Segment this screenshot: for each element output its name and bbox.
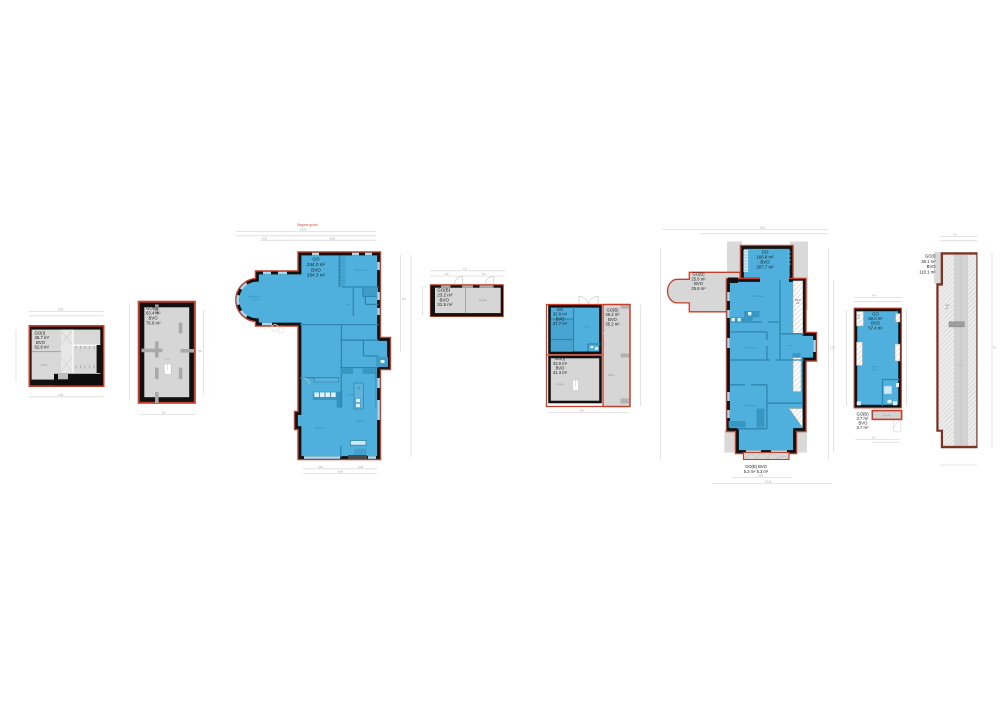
svg-text:6,50: 6,50 bbox=[330, 236, 336, 240]
svg-text:41.3 m²: 41.3 m² bbox=[553, 370, 568, 375]
svg-text:12,10: 12,10 bbox=[765, 480, 772, 484]
svg-text:4,1: 4,1 bbox=[872, 436, 876, 440]
svg-text:264.3 m²: 264.3 m² bbox=[307, 273, 326, 278]
svg-text:8,9: 8,9 bbox=[580, 409, 584, 413]
svg-text:m²: m² bbox=[946, 307, 949, 310]
svg-text:57.4 m²: 57.4 m² bbox=[868, 325, 883, 330]
svg-text:38.2 m²: 38.2 m² bbox=[871, 369, 879, 372]
svg-text:8,6: 8,6 bbox=[402, 297, 406, 301]
svg-text:Woonk.: Woonk. bbox=[871, 367, 879, 369]
svg-text:3,6: 3,6 bbox=[445, 272, 449, 276]
svg-text:3,4: 3,4 bbox=[953, 233, 957, 237]
svg-text:Keuken: Keuken bbox=[346, 395, 355, 397]
svg-text:62.6 m²: 62.6 m² bbox=[35, 345, 50, 350]
svg-text:14,00: 14,00 bbox=[300, 228, 307, 232]
svg-text:Balkon: Balkon bbox=[608, 375, 616, 377]
svg-text:207.7 m²: 207.7 m² bbox=[756, 264, 774, 269]
svg-text:Slaapkamer: Slaapkamer bbox=[355, 269, 367, 272]
svg-text:76.6 m²: 76.6 m² bbox=[146, 320, 161, 325]
svg-text:244.0 m²: 244.0 m² bbox=[307, 262, 326, 267]
svg-text:Eetkamer: Eetkamer bbox=[356, 420, 366, 423]
svg-text:4,20: 4,20 bbox=[262, 236, 268, 240]
svg-text:Slaapkamer: Slaapkamer bbox=[745, 347, 757, 350]
svg-text:3,6: 3,6 bbox=[482, 272, 486, 276]
svg-text:4,57: 4,57 bbox=[318, 465, 324, 469]
svg-text:110.1 m²: 110.1 m² bbox=[919, 269, 936, 274]
svg-text:GO: GO bbox=[312, 257, 320, 262]
svg-text:25.6 m²: 25.6 m² bbox=[691, 286, 706, 291]
svg-text:Zitkamer: Zitkamer bbox=[315, 427, 324, 430]
svg-text:Begane grond: Begane grond bbox=[297, 223, 317, 227]
svg-text:3.2 m²: 3.2 m² bbox=[957, 364, 963, 367]
svg-text:3,05: 3,05 bbox=[358, 465, 364, 469]
svg-text:4,65: 4,65 bbox=[758, 474, 764, 478]
svg-text:5,6: 5,6 bbox=[162, 411, 166, 415]
svg-text:7,5: 7,5 bbox=[463, 267, 467, 271]
svg-text:5.3 m² 5.3 m²: 5.3 m² 5.3 m² bbox=[744, 469, 769, 474]
svg-text:31.5 m²: 31.5 m² bbox=[437, 302, 453, 307]
svg-text:Garage: Garage bbox=[556, 383, 564, 386]
svg-text:4,4: 4,4 bbox=[872, 294, 876, 298]
svg-text:35.2 m²: 35.2 m² bbox=[605, 322, 620, 327]
svg-text:Slaapk.: Slaapk. bbox=[786, 345, 794, 347]
svg-text:Berging: Berging bbox=[479, 299, 488, 302]
svg-text:52.0 m²: 52.0 m² bbox=[252, 299, 260, 302]
svg-text:m²: m² bbox=[796, 301, 799, 305]
svg-text:8,00: 8,00 bbox=[338, 470, 344, 474]
svg-text:37.7 m²: 37.7 m² bbox=[553, 321, 568, 326]
svg-text:16,6: 16,6 bbox=[760, 226, 766, 230]
svg-text:Hal: Hal bbox=[346, 304, 350, 306]
svg-text:7,25: 7,25 bbox=[58, 393, 64, 397]
svg-text:4,93: 4,93 bbox=[58, 308, 64, 312]
svg-text:3.7 m²: 3.7 m² bbox=[857, 425, 869, 430]
svg-text:17,2: 17,2 bbox=[830, 346, 836, 350]
svg-text:Zolder: Zolder bbox=[41, 364, 48, 367]
svg-text:Berging: Berging bbox=[883, 414, 891, 417]
svg-text:Slaapkamer: Slaapkamer bbox=[744, 405, 756, 408]
svg-text:Woonkamer: Woonkamer bbox=[752, 295, 765, 298]
svg-text:9,6: 9,6 bbox=[198, 349, 202, 353]
svg-text:BVO: BVO bbox=[311, 267, 321, 272]
svg-text:Woonkamer: Woonkamer bbox=[248, 296, 261, 299]
svg-text:Woonk.: Woonk. bbox=[583, 327, 591, 329]
svg-text:19: 19 bbox=[993, 346, 996, 350]
svg-text:Kelder: Kelder bbox=[165, 359, 171, 361]
